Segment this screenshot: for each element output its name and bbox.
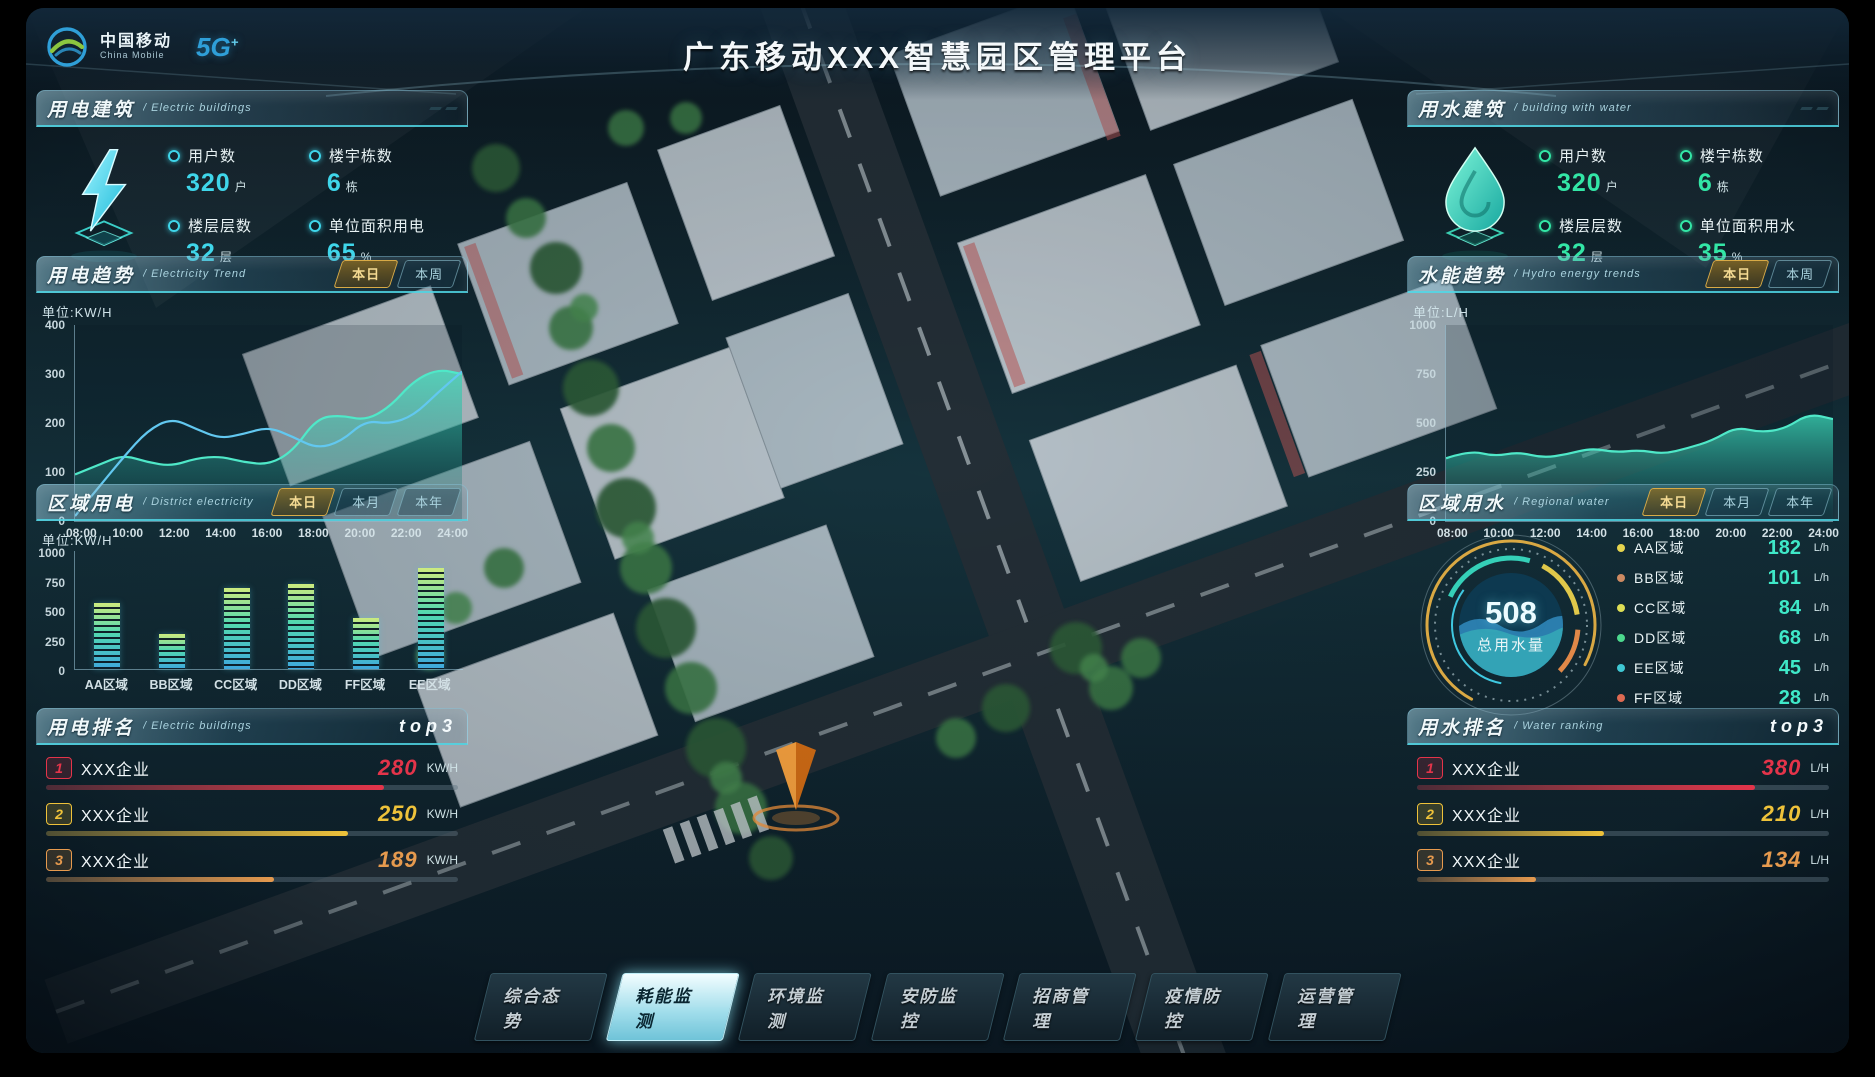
district-electricity-bar-chart: 02505007501000 AA区域BB区域CC区域DD区域FF区域EE区域 — [36, 551, 468, 693]
unit-label: 单位:KW/H — [42, 530, 468, 549]
bullet-icon — [1539, 220, 1551, 232]
header-decoration — [1801, 107, 1828, 110]
dashboard-root: 中国移动 China Mobile 5G+ 广东移动XXX智慧园区管理平台 用电… — [26, 8, 1849, 1053]
nav-item-operations-management[interactable]: 运营管理 — [1267, 973, 1401, 1041]
nav-item-overview[interactable]: 综合态势 — [473, 973, 607, 1041]
header-decoration — [430, 107, 457, 110]
panel-subtitle: / Electric buildings — [143, 720, 252, 732]
x-axis: AA区域BB区域CC区域DD区域FF区域EE区域 — [74, 674, 462, 693]
rank-bar — [1417, 831, 1829, 836]
nav-item-investment-management[interactable]: 招商管理 — [1003, 973, 1137, 1041]
panel-electric-ranking: 用电排名 / Electric buildings top3 1 XXX企业 2… — [36, 708, 468, 876]
panel-water-building: 用水建筑 / building with water 用户数 320户 — [1407, 90, 1839, 252]
water-donut-gauge: 508 总用水量 — [1415, 529, 1607, 721]
gauge-value: 508 — [1485, 595, 1537, 631]
panel-district-electricity: 区域用电 / District electricity 本日 本月 本年 单位:… — [36, 484, 468, 686]
panel-subtitle: / Hydro energy trends — [1514, 268, 1641, 280]
tab-year[interactable]: 本年 — [396, 488, 461, 516]
panel-regional-water: 区域用水 / Regional water 本日 本月 本年 — [1407, 484, 1839, 710]
panel-water-ranking: 用水排名 / Water ranking top3 1 XXX企业 380 L/… — [1407, 708, 1839, 876]
legend-item: BB区域 101 L/h — [1617, 565, 1829, 591]
stat-users: 用户数 320户 — [1539, 145, 1674, 199]
tab-today[interactable]: 本日 — [333, 260, 398, 288]
ranking-row: 3 XXX企业 189 KW/H — [46, 847, 458, 882]
unit-label: 单位:L/H — [1413, 302, 1839, 321]
nav-item-security-monitoring[interactable]: 安防监控 — [870, 973, 1004, 1041]
tab-year[interactable]: 本年 — [1767, 488, 1832, 516]
panel-subtitle: / Water ranking — [1514, 720, 1603, 732]
legend-dot-icon — [1617, 604, 1625, 612]
stat-buildings: 楼宇栋数 6栋 — [1680, 145, 1835, 199]
bullet-icon — [168, 220, 180, 232]
panel-subtitle: / Electric buildings — [143, 102, 252, 114]
gauge-label: 总用水量 — [1477, 634, 1545, 655]
panel-subtitle: / building with water — [1514, 102, 1632, 114]
ranking-row: 3 XXX企业 134 L/H — [1417, 847, 1829, 882]
page-title: 广东移动XXX智慧园区管理平台 — [26, 32, 1849, 77]
nav-item-epidemic-prevention[interactable]: 疫情防控 — [1135, 973, 1269, 1041]
bullet-icon — [168, 150, 180, 162]
legend-dot-icon — [1617, 574, 1625, 582]
water-drop-icon — [1413, 137, 1539, 269]
tab-today[interactable]: 本日 — [1704, 260, 1769, 288]
panel-title: 用电趋势 — [47, 261, 135, 288]
legend-dot-icon — [1617, 634, 1625, 642]
top3-badge: top3 — [1770, 716, 1828, 737]
y-axis: 02505007501000 — [36, 553, 70, 671]
panel-title: 用水建筑 — [1418, 95, 1506, 122]
bullet-icon — [309, 220, 321, 232]
rank-bar — [46, 877, 458, 882]
legend-item: CC区域 84 L/h — [1617, 595, 1829, 621]
tab-month[interactable]: 本月 — [333, 488, 398, 516]
rank-badge: 2 — [1417, 803, 1443, 825]
rank-bar — [1417, 785, 1829, 790]
ranking-row: 1 XXX企业 380 L/H — [1417, 755, 1829, 790]
panel-subtitle: / District electricity — [143, 496, 254, 508]
ranking-row: 1 XXX企业 280 KW/H — [46, 755, 458, 790]
legend-dot-icon — [1617, 664, 1625, 672]
tab-week[interactable]: 本周 — [396, 260, 461, 288]
bottom-nav: 综合态势 耗能监测 环境监测 安防监控 招商管理 疫情防控 运营管理 — [482, 973, 1394, 1041]
rank-bar — [1417, 877, 1829, 882]
legend-dot-icon — [1617, 544, 1625, 552]
panel-title: 用水排名 — [1418, 713, 1506, 740]
legend-item: AA区域 182 L/h — [1617, 535, 1829, 561]
panel-title: 水能趋势 — [1418, 261, 1506, 288]
tab-week[interactable]: 本周 — [1767, 260, 1832, 288]
rank-badge: 2 — [46, 803, 72, 825]
tab-today[interactable]: 本日 — [1641, 488, 1706, 516]
legend-item: DD区域 68 L/h — [1617, 625, 1829, 651]
rank-badge: 1 — [1417, 757, 1443, 779]
panel-title: 用电建筑 — [47, 95, 135, 122]
bullet-icon — [1680, 220, 1692, 232]
ranking-row: 2 XXX企业 250 KW/H — [46, 801, 458, 836]
panel-electric-building: 用电建筑 / Electric buildings 用户数 320户 — [36, 90, 468, 252]
tab-today[interactable]: 本日 — [270, 488, 335, 516]
rank-badge: 3 — [46, 849, 72, 871]
legend-item: EE区域 45 L/h — [1617, 655, 1829, 681]
panel-title: 用电排名 — [47, 713, 135, 740]
electric-bolt-icon — [42, 137, 168, 269]
panel-title: 区域用水 — [1418, 489, 1506, 516]
panel-subtitle: / Regional water — [1514, 496, 1610, 508]
panel-title: 区域用电 — [47, 489, 135, 516]
rank-badge: 3 — [1417, 849, 1443, 871]
rank-bar — [46, 831, 458, 836]
bullet-icon — [1680, 150, 1692, 162]
rank-bar — [46, 785, 458, 790]
ranking-row: 2 XXX企业 210 L/H — [1417, 801, 1829, 836]
stat-users: 用户数 320户 — [168, 145, 303, 199]
rank-badge: 1 — [46, 757, 72, 779]
panel-subtitle: / Electricity Trend — [143, 268, 246, 280]
stat-buildings: 楼宇栋数 6栋 — [309, 145, 464, 199]
top-bar: 中国移动 China Mobile 5G+ 广东移动XXX智慧园区管理平台 — [26, 8, 1849, 100]
unit-label: 单位:KW/H — [42, 302, 468, 321]
tab-month[interactable]: 本月 — [1704, 488, 1769, 516]
nav-item-environment-monitoring[interactable]: 环境监测 — [738, 973, 872, 1041]
legend-dot-icon — [1617, 694, 1625, 702]
nav-item-energy-monitoring[interactable]: 耗能监测 — [606, 973, 740, 1041]
top3-badge: top3 — [399, 716, 457, 737]
bullet-icon — [1539, 150, 1551, 162]
bullet-icon — [309, 150, 321, 162]
